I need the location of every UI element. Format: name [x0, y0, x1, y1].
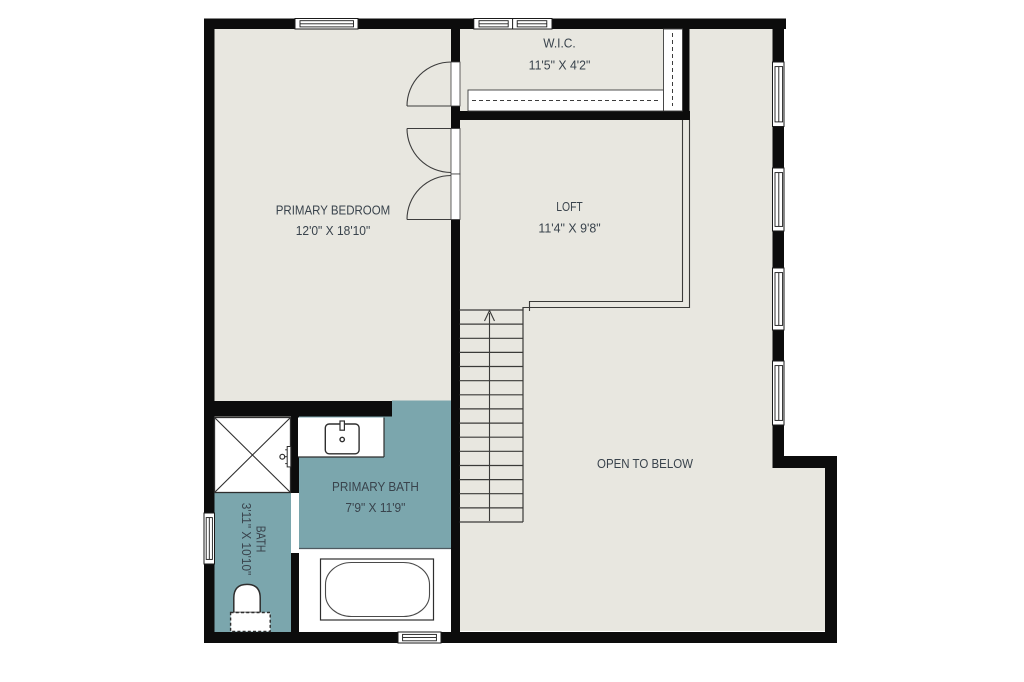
svg-text:12'0" X 18'10": 12'0" X 18'10": [296, 224, 371, 238]
svg-text:OPEN TO BELOW: OPEN TO BELOW: [597, 456, 694, 471]
svg-text:LOFT: LOFT: [556, 199, 583, 214]
svg-text:11'4" X 9'8": 11'4" X 9'8": [538, 221, 600, 235]
svg-text:W.I.C.: W.I.C.: [543, 36, 576, 51]
svg-text:BATH: BATH: [254, 526, 269, 553]
svg-text:PRIMARY BEDROOM: PRIMARY BEDROOM: [276, 203, 391, 218]
svg-text:3'11" X 10'10": 3'11" X 10'10": [239, 503, 253, 576]
svg-text:PRIMARY BATH: PRIMARY BATH: [332, 479, 419, 494]
svg-text:7'9" X 11'9": 7'9" X 11'9": [345, 501, 405, 515]
svg-text:11'5" X 4'2": 11'5" X 4'2": [529, 58, 591, 72]
